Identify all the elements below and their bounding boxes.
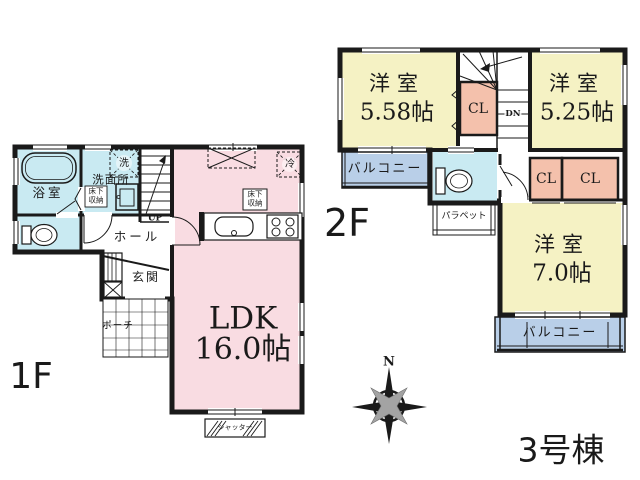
- f1-entrance-step-line: [103, 256, 169, 270]
- f2-closet-stair-label: CL: [468, 102, 488, 116]
- f2-balcony-west-label: バルコニー: [348, 163, 423, 176]
- f1-stairs-up-label: UP: [148, 215, 163, 224]
- f1-hall-label: ホール: [114, 231, 161, 244]
- f1-entrance-label: 玄関: [132, 271, 160, 283]
- f2-bedroom2-size-label: 5.25帖: [540, 102, 614, 125]
- vanity-icon: [116, 184, 138, 210]
- f1-fridge-label: 冷: [285, 160, 295, 170]
- f2-toilet-icon: [436, 168, 472, 194]
- compass-icon: [352, 367, 427, 444]
- kitchen-icon: [199, 212, 302, 241]
- f1-bath-label: 浴室: [32, 187, 63, 200]
- f1-toilet-icon: [22, 225, 57, 246]
- f1-ldk-size-label: 16.0帖: [195, 335, 292, 365]
- f1-washroom-label: 洗面所: [92, 174, 130, 186]
- f1-shutter-label: シャッター: [218, 425, 253, 432]
- f2-parapet-label: パラペット: [441, 213, 486, 222]
- f1-porch-label: ポーチ: [102, 321, 134, 331]
- f2-stairs-down-label: DN: [504, 110, 521, 119]
- f1-stairs-icon: [140, 155, 172, 214]
- f2-bedroom1-size-label: 5.58帖: [360, 102, 434, 125]
- f2-doors: [497, 165, 529, 203]
- f1-underfloor-washroom-label: 床下収納: [88, 187, 105, 204]
- f2-closet-a-label: CL: [536, 172, 556, 186]
- floorplan-canvas: 浴室 洗面所 洗 床下収納 UP ホール 玄関 ポーチ LDK 16.0帖 床下…: [0, 0, 640, 480]
- bathtub-icon: [22, 153, 76, 183]
- f2-bedroom1-label: 洋室: [369, 74, 425, 95]
- f2-bedroom2-label: 洋室: [549, 74, 605, 95]
- compass-north-label: N: [383, 356, 395, 369]
- f1-ldk-label: LDK: [209, 304, 278, 335]
- f2-floor-label: 2F: [324, 204, 370, 242]
- f1-washer-label: 洗: [119, 159, 129, 169]
- f2-closet-b-label: CL: [580, 172, 600, 186]
- building-label: 3号棟: [518, 434, 605, 467]
- f1-underfloor-ldk-label: 床下収納: [246, 190, 264, 207]
- f2-balcony-south-label: バルコニー: [523, 327, 598, 340]
- f2-bedroom3-size-label: 7.0帖: [532, 263, 592, 286]
- f2-bedroom3-label: 洋室: [534, 235, 590, 256]
- f1-floor-label: 1F: [9, 359, 53, 395]
